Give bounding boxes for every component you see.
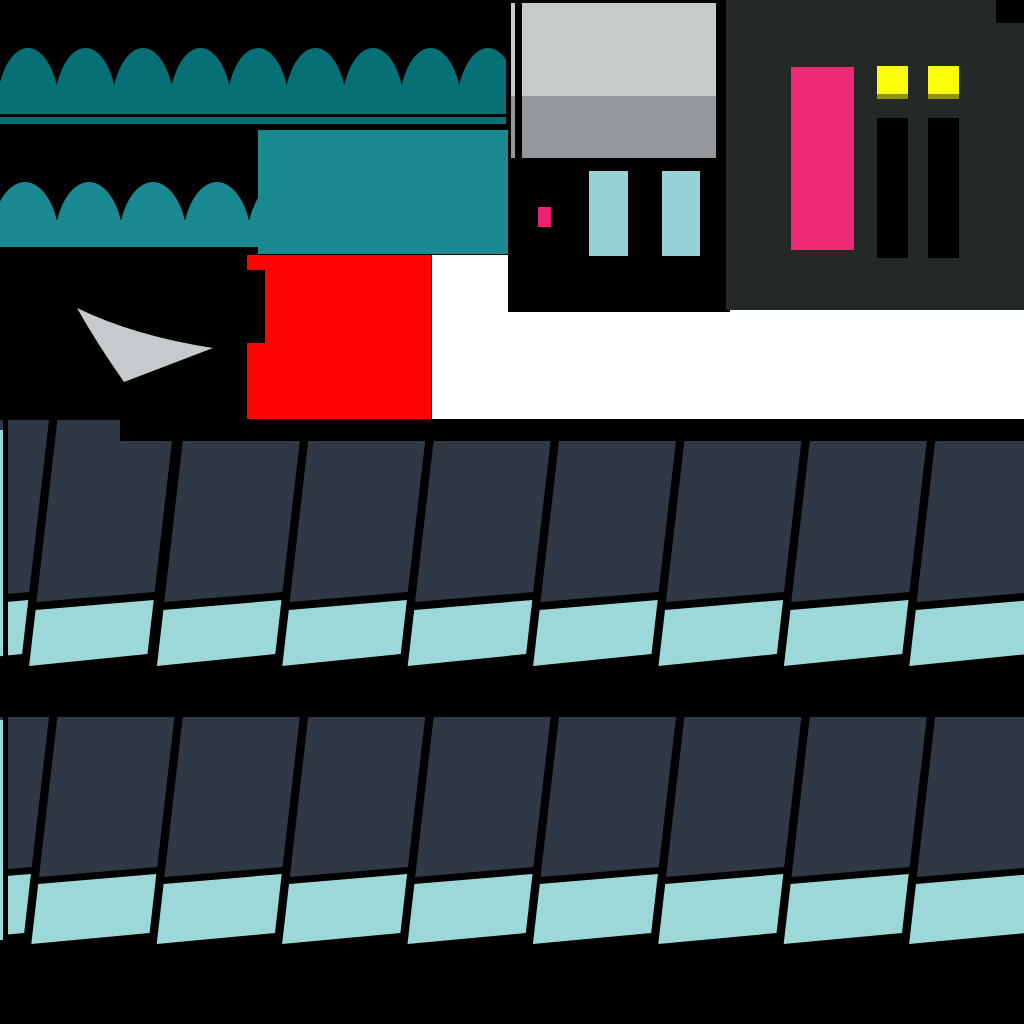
shingle-tile-cyan bbox=[408, 874, 533, 944]
shingle-tile-dark bbox=[37, 420, 175, 602]
shingle-tile-dark bbox=[164, 717, 299, 877]
shingle-tile-dark bbox=[666, 441, 802, 602]
yellow-light-shadow bbox=[928, 94, 959, 99]
shingle-tile-dark bbox=[290, 441, 426, 602]
shingle-tile-dark bbox=[541, 441, 677, 602]
shingle-tile-dark bbox=[541, 717, 676, 877]
storefront-sign-panel bbox=[258, 130, 508, 254]
window-glass-lower bbox=[511, 96, 718, 158]
window-mullion bbox=[515, 0, 522, 158]
awning-row-1 bbox=[0, 48, 520, 114]
shingle-tile-cyan bbox=[157, 874, 282, 944]
window-mullion bbox=[716, 0, 723, 158]
shingle-tile-dark bbox=[415, 717, 550, 877]
atlas-svg bbox=[0, 0, 1024, 1024]
shingle-tile-dark bbox=[415, 441, 550, 602]
roof-top-cover-strip bbox=[120, 419, 1024, 441]
window-top-edge bbox=[511, 0, 718, 3]
pink-chip bbox=[538, 207, 551, 227]
shingle-tile-cyan bbox=[909, 600, 1024, 666]
facade-corner-cut bbox=[996, 0, 1024, 23]
shingle-tile-dark bbox=[39, 717, 174, 877]
shingle-tile-cyan bbox=[31, 874, 156, 944]
sheet-edge-strip-black bbox=[3, 717, 8, 945]
shingle-tile-dark bbox=[791, 717, 926, 877]
shingle-tile-cyan bbox=[784, 874, 909, 944]
window-glass-upper bbox=[511, 2, 718, 96]
shingle-tile-dark bbox=[917, 717, 1024, 877]
shingle-tile-cyan bbox=[909, 874, 1024, 944]
shingle-tile-dark bbox=[290, 717, 425, 877]
yellow-light-shadow bbox=[877, 94, 908, 99]
glass-pane-bar bbox=[662, 171, 700, 256]
shingle-tile-cyan bbox=[658, 874, 783, 944]
shingle-tile-dark bbox=[917, 441, 1024, 602]
sheet-edge-strip-black bbox=[3, 419, 8, 669]
yellow-light bbox=[928, 66, 959, 97]
red-block-notch bbox=[247, 270, 265, 343]
shingle-tile-dark bbox=[666, 717, 801, 877]
pink-door bbox=[791, 67, 854, 250]
shingle-tile-dark bbox=[791, 441, 927, 602]
shingle-tile-dark bbox=[164, 441, 299, 602]
dark-window-slot bbox=[928, 118, 959, 258]
shingle-tile-cyan bbox=[282, 874, 407, 944]
glass-pane-bar bbox=[589, 171, 628, 256]
texture-atlas-page bbox=[0, 0, 1024, 1024]
yellow-light bbox=[877, 66, 908, 97]
awning-valance-line bbox=[0, 117, 506, 124]
dark-window-slot bbox=[877, 118, 908, 258]
red-block bbox=[247, 255, 431, 420]
shingle-tile-cyan bbox=[533, 874, 658, 944]
dark-facade-panel bbox=[726, 0, 1024, 310]
